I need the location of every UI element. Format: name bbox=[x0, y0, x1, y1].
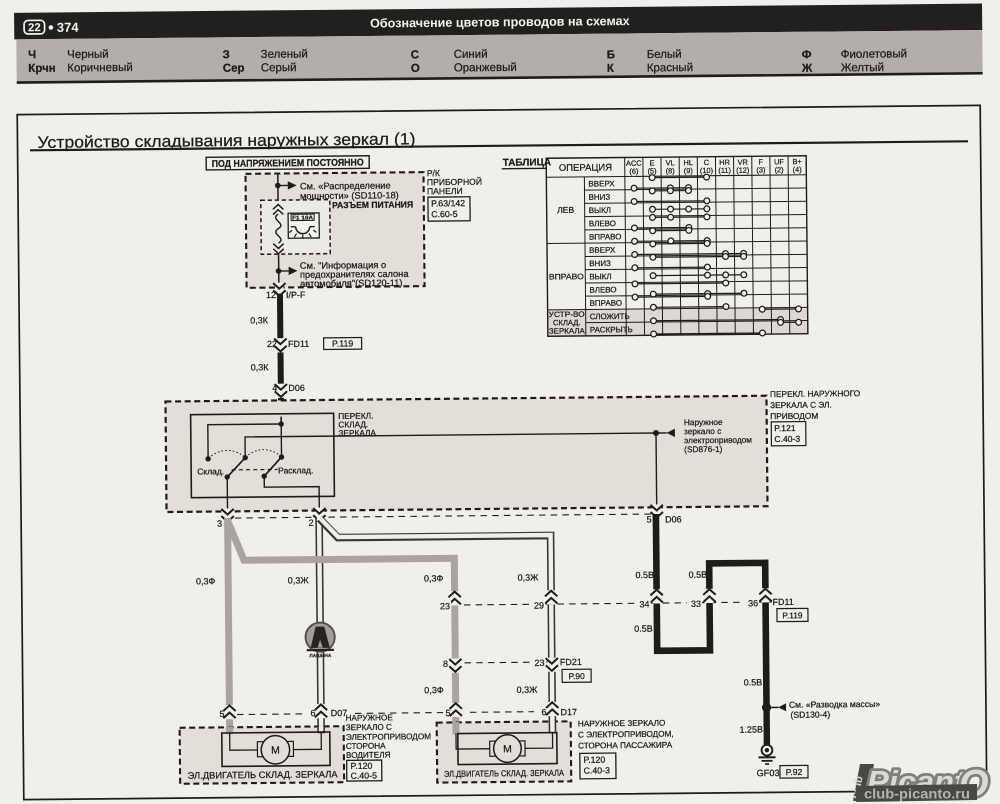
svg-text:СТОРОНА: СТОРОНА bbox=[346, 742, 386, 751]
svg-text:ВЛЕВО: ВЛЕВО bbox=[589, 285, 616, 294]
svg-text:GF03: GF03 bbox=[757, 768, 780, 778]
svg-text:(3): (3) bbox=[756, 165, 765, 174]
svg-text:3: 3 bbox=[217, 519, 222, 529]
svg-text:ПЕРЕКЛ. НАРУЖНОГО: ПЕРЕКЛ. НАРУЖНОГО bbox=[770, 388, 861, 399]
svg-text:ЛАШИНА: ЛАШИНА bbox=[309, 653, 332, 658]
svg-text:СЛОЖИТЬ: СЛОЖИТЬ bbox=[590, 312, 630, 321]
svg-text:12: 12 bbox=[266, 290, 276, 300]
svg-text:C.40-3: C.40-3 bbox=[774, 434, 800, 444]
svg-text:С: С bbox=[411, 49, 419, 61]
svg-text:0.5В: 0.5В bbox=[689, 570, 708, 580]
svg-text:0,3Ф: 0,3Ф bbox=[424, 573, 444, 583]
svg-text:Черный: Черный bbox=[67, 49, 109, 61]
svg-text:5: 5 bbox=[219, 709, 224, 719]
svg-text:Б: Б bbox=[607, 49, 615, 61]
svg-text:ЗЕРКАЛА С ЭЛ.: ЗЕРКАЛА С ЭЛ. bbox=[770, 400, 832, 411]
svg-text:0,3Ж: 0,3Ж bbox=[517, 685, 539, 695]
svg-text:M: M bbox=[271, 745, 280, 757]
svg-text:FD11: FD11 bbox=[288, 339, 309, 349]
svg-text:P.63/142: P.63/142 bbox=[431, 198, 465, 208]
svg-text:Синий: Синий bbox=[454, 49, 488, 61]
svg-text:34: 34 bbox=[639, 599, 649, 609]
svg-text:6: 6 bbox=[541, 707, 546, 717]
svg-text:2: 2 bbox=[309, 518, 314, 528]
svg-text:(11): (11) bbox=[718, 166, 731, 175]
svg-text:ЗЕРКАЛА: ЗЕРКАЛА bbox=[338, 428, 376, 438]
svg-text:C.40-5: C.40-5 bbox=[351, 770, 378, 780]
svg-text:Ж: Ж bbox=[801, 63, 813, 75]
svg-text:F1 10A: F1 10A bbox=[292, 215, 313, 221]
svg-text:К: К bbox=[607, 63, 615, 75]
svg-text:ЭЛЕКТРОПРИВОДОМ: ЭЛЕКТРОПРИВОДОМ bbox=[346, 732, 431, 742]
svg-text:(SD876-1): (SD876-1) bbox=[684, 444, 723, 454]
svg-text:M: M bbox=[503, 743, 512, 755]
svg-text:P.120: P.120 bbox=[350, 761, 372, 771]
svg-text:См. «Разводка массы»: См. «Разводка массы» bbox=[789, 699, 880, 710]
svg-text:0.5В: 0.5В bbox=[634, 624, 653, 634]
svg-text:0,3К: 0,3К bbox=[250, 315, 269, 325]
svg-text:Зеленый: Зеленый bbox=[261, 48, 308, 60]
svg-text:0.5В: 0.5В bbox=[744, 677, 763, 687]
svg-text:НАРУЖНОЕ: НАРУЖНОЕ bbox=[346, 713, 394, 722]
svg-text:P.119: P.119 bbox=[332, 338, 353, 348]
svg-text:Склад.: Склад. bbox=[197, 466, 224, 476]
svg-text:(12): (12) bbox=[736, 166, 749, 175]
svg-text:P.90: P.90 bbox=[569, 671, 586, 681]
svg-text:Красный: Красный bbox=[647, 62, 693, 74]
svg-text:ВОДИТЕЛЯ: ВОДИТЕЛЯ bbox=[346, 750, 391, 759]
svg-text:ВПРАВО: ВПРАВО bbox=[589, 232, 622, 241]
svg-text:Сер: Сер bbox=[223, 63, 245, 75]
svg-text:(9): (9) bbox=[684, 166, 693, 175]
svg-text:D17: D17 bbox=[560, 707, 577, 717]
svg-text:ВНИЗ: ВНИЗ bbox=[589, 259, 611, 268]
svg-text:5: 5 bbox=[445, 708, 450, 718]
svg-text:ВПРАВО: ВПРАВО bbox=[590, 299, 623, 308]
svg-text:С ЭЛЕКТРОПРИВОДОМ,: С ЭЛЕКТРОПРИВОДОМ, bbox=[578, 730, 674, 740]
svg-text:5: 5 bbox=[647, 514, 652, 524]
svg-text:Обозначение цветов проводов на: Обозначение цветов проводов на схемах bbox=[370, 14, 630, 30]
svg-text:P.92: P.92 bbox=[786, 767, 803, 777]
svg-text:FD21: FD21 bbox=[560, 657, 582, 667]
svg-text:FD11: FD11 bbox=[772, 597, 793, 607]
svg-text:(SD130-4): (SD130-4) bbox=[790, 709, 830, 719]
svg-text:29: 29 bbox=[534, 600, 544, 610]
svg-text:ПОД НАПРЯЖЕНИЕМ ПОСТОЯННО: ПОД НАПРЯЖЕНИЕМ ПОСТОЯННО bbox=[212, 157, 364, 169]
svg-text:ЗЕРКАЛА: ЗЕРКАЛА bbox=[549, 326, 586, 335]
svg-text:8: 8 bbox=[443, 659, 448, 669]
svg-text:ВНИЗ: ВНИЗ bbox=[588, 193, 610, 202]
svg-text:ТАБЛИЦА: ТАБЛИЦА bbox=[503, 157, 551, 168]
svg-text:СТОРОНА ПАССАЖИРА: СТОРОНА ПАССАЖИРА bbox=[578, 741, 673, 751]
svg-text:0,3Ж: 0,3Ж bbox=[518, 572, 540, 582]
svg-text:О: О bbox=[411, 63, 420, 75]
svg-text:ВВЕРХ: ВВЕРХ bbox=[589, 246, 616, 255]
svg-text:ЛЕВ: ЛЕВ bbox=[557, 205, 574, 215]
svg-text:club-picanto.ru: club-picanto.ru bbox=[864, 786, 970, 802]
svg-text:(4): (4) bbox=[793, 165, 802, 174]
svg-text:374: 374 bbox=[57, 20, 80, 35]
svg-text:23: 23 bbox=[534, 658, 544, 668]
svg-text:ПАНЕЛИ: ПАНЕЛИ bbox=[427, 186, 463, 196]
svg-text:ЗЕРКАЛО С: ЗЕРКАЛО С bbox=[346, 723, 392, 732]
svg-text:P.119: P.119 bbox=[782, 610, 803, 620]
svg-text:ВЫКЛ: ВЫКЛ bbox=[589, 206, 611, 215]
svg-text:Белый: Белый bbox=[647, 49, 682, 61]
svg-text:22: 22 bbox=[28, 22, 41, 34]
svg-text:ВЫКЛ: ВЫКЛ bbox=[589, 272, 611, 281]
svg-text:P.121: P.121 bbox=[774, 423, 796, 433]
svg-text:0.5В: 0.5В bbox=[635, 570, 654, 580]
svg-text:(8): (8) bbox=[666, 166, 675, 175]
svg-text:0,3Ф: 0,3Ф bbox=[424, 685, 444, 695]
svg-text:Ф: Ф bbox=[802, 49, 812, 61]
svg-text:ЭЛ.ДВИГАТЕЛЬ СКЛАД. ЗЕРКАЛА: ЭЛ.ДВИГАТЕЛЬ СКЛАД. ЗЕРКАЛА bbox=[444, 768, 564, 779]
svg-text:ВПРАВО: ВПРАВО bbox=[549, 272, 584, 281]
svg-text:ПРИВОДОМ: ПРИВОДОМ bbox=[770, 411, 818, 421]
svg-text:(2): (2) bbox=[775, 165, 784, 174]
svg-text:36: 36 bbox=[748, 598, 758, 608]
svg-text:РАЗЪЕМ ПИТАНИЯ: РАЗЪЕМ ПИТАНИЯ bbox=[332, 199, 413, 210]
svg-text:НАРУЖНОЕ ЗЕРКАЛО: НАРУЖНОЕ ЗЕРКАЛО bbox=[578, 719, 666, 729]
svg-text:0,3Ж: 0,3Ж bbox=[288, 575, 310, 585]
svg-text:ЭЛ.ДВИГАТЕЛЬ СКЛАД. ЗЕРКАЛА: ЭЛ.ДВИГАТЕЛЬ СКЛАД. ЗЕРКАЛА bbox=[188, 769, 339, 780]
svg-text:1.25В: 1.25В bbox=[739, 724, 763, 734]
svg-text:Серый: Серый bbox=[261, 62, 297, 74]
svg-text:З: З bbox=[223, 49, 230, 61]
svg-text:(6): (6) bbox=[629, 167, 638, 176]
svg-text:Оранжевый: Оранжевый bbox=[454, 62, 517, 75]
svg-text:Желтый: Желтый bbox=[841, 62, 884, 74]
svg-text:Крчн: Крчн bbox=[28, 63, 56, 75]
svg-text:D06: D06 bbox=[288, 383, 305, 393]
svg-text:I/P-F: I/P-F bbox=[286, 290, 306, 300]
svg-text:ВВЕРХ: ВВЕРХ bbox=[588, 179, 615, 188]
svg-text:Расклад.: Расклад. bbox=[278, 465, 313, 475]
svg-text:P.120: P.120 bbox=[583, 755, 605, 765]
svg-text:Коричневый: Коричневый bbox=[67, 62, 133, 75]
svg-text:ВЛЕВО: ВЛЕВО bbox=[589, 219, 616, 228]
svg-text:0,3К: 0,3К bbox=[251, 362, 270, 372]
svg-text:автомобиля"(SD120-11): автомобиля"(SD120-11) bbox=[300, 278, 403, 289]
svg-text:ОПЕРАЦИЯ: ОПЕРАЦИЯ bbox=[559, 162, 613, 174]
svg-text:Ч: Ч bbox=[28, 49, 36, 61]
svg-text:C.60-5: C.60-5 bbox=[431, 209, 458, 219]
svg-text:23: 23 bbox=[440, 601, 450, 611]
svg-text:Фиолетовый: Фиолетовый bbox=[841, 48, 907, 61]
svg-text:33: 33 bbox=[691, 599, 701, 609]
svg-text:РАСКРЫТЬ: РАСКРЫТЬ bbox=[590, 325, 633, 334]
svg-text:C.40-3: C.40-3 bbox=[583, 765, 610, 775]
svg-text:0,3Ф: 0,3Ф bbox=[196, 576, 216, 586]
svg-text:D06: D06 bbox=[665, 514, 682, 524]
svg-text:6: 6 bbox=[310, 708, 315, 718]
